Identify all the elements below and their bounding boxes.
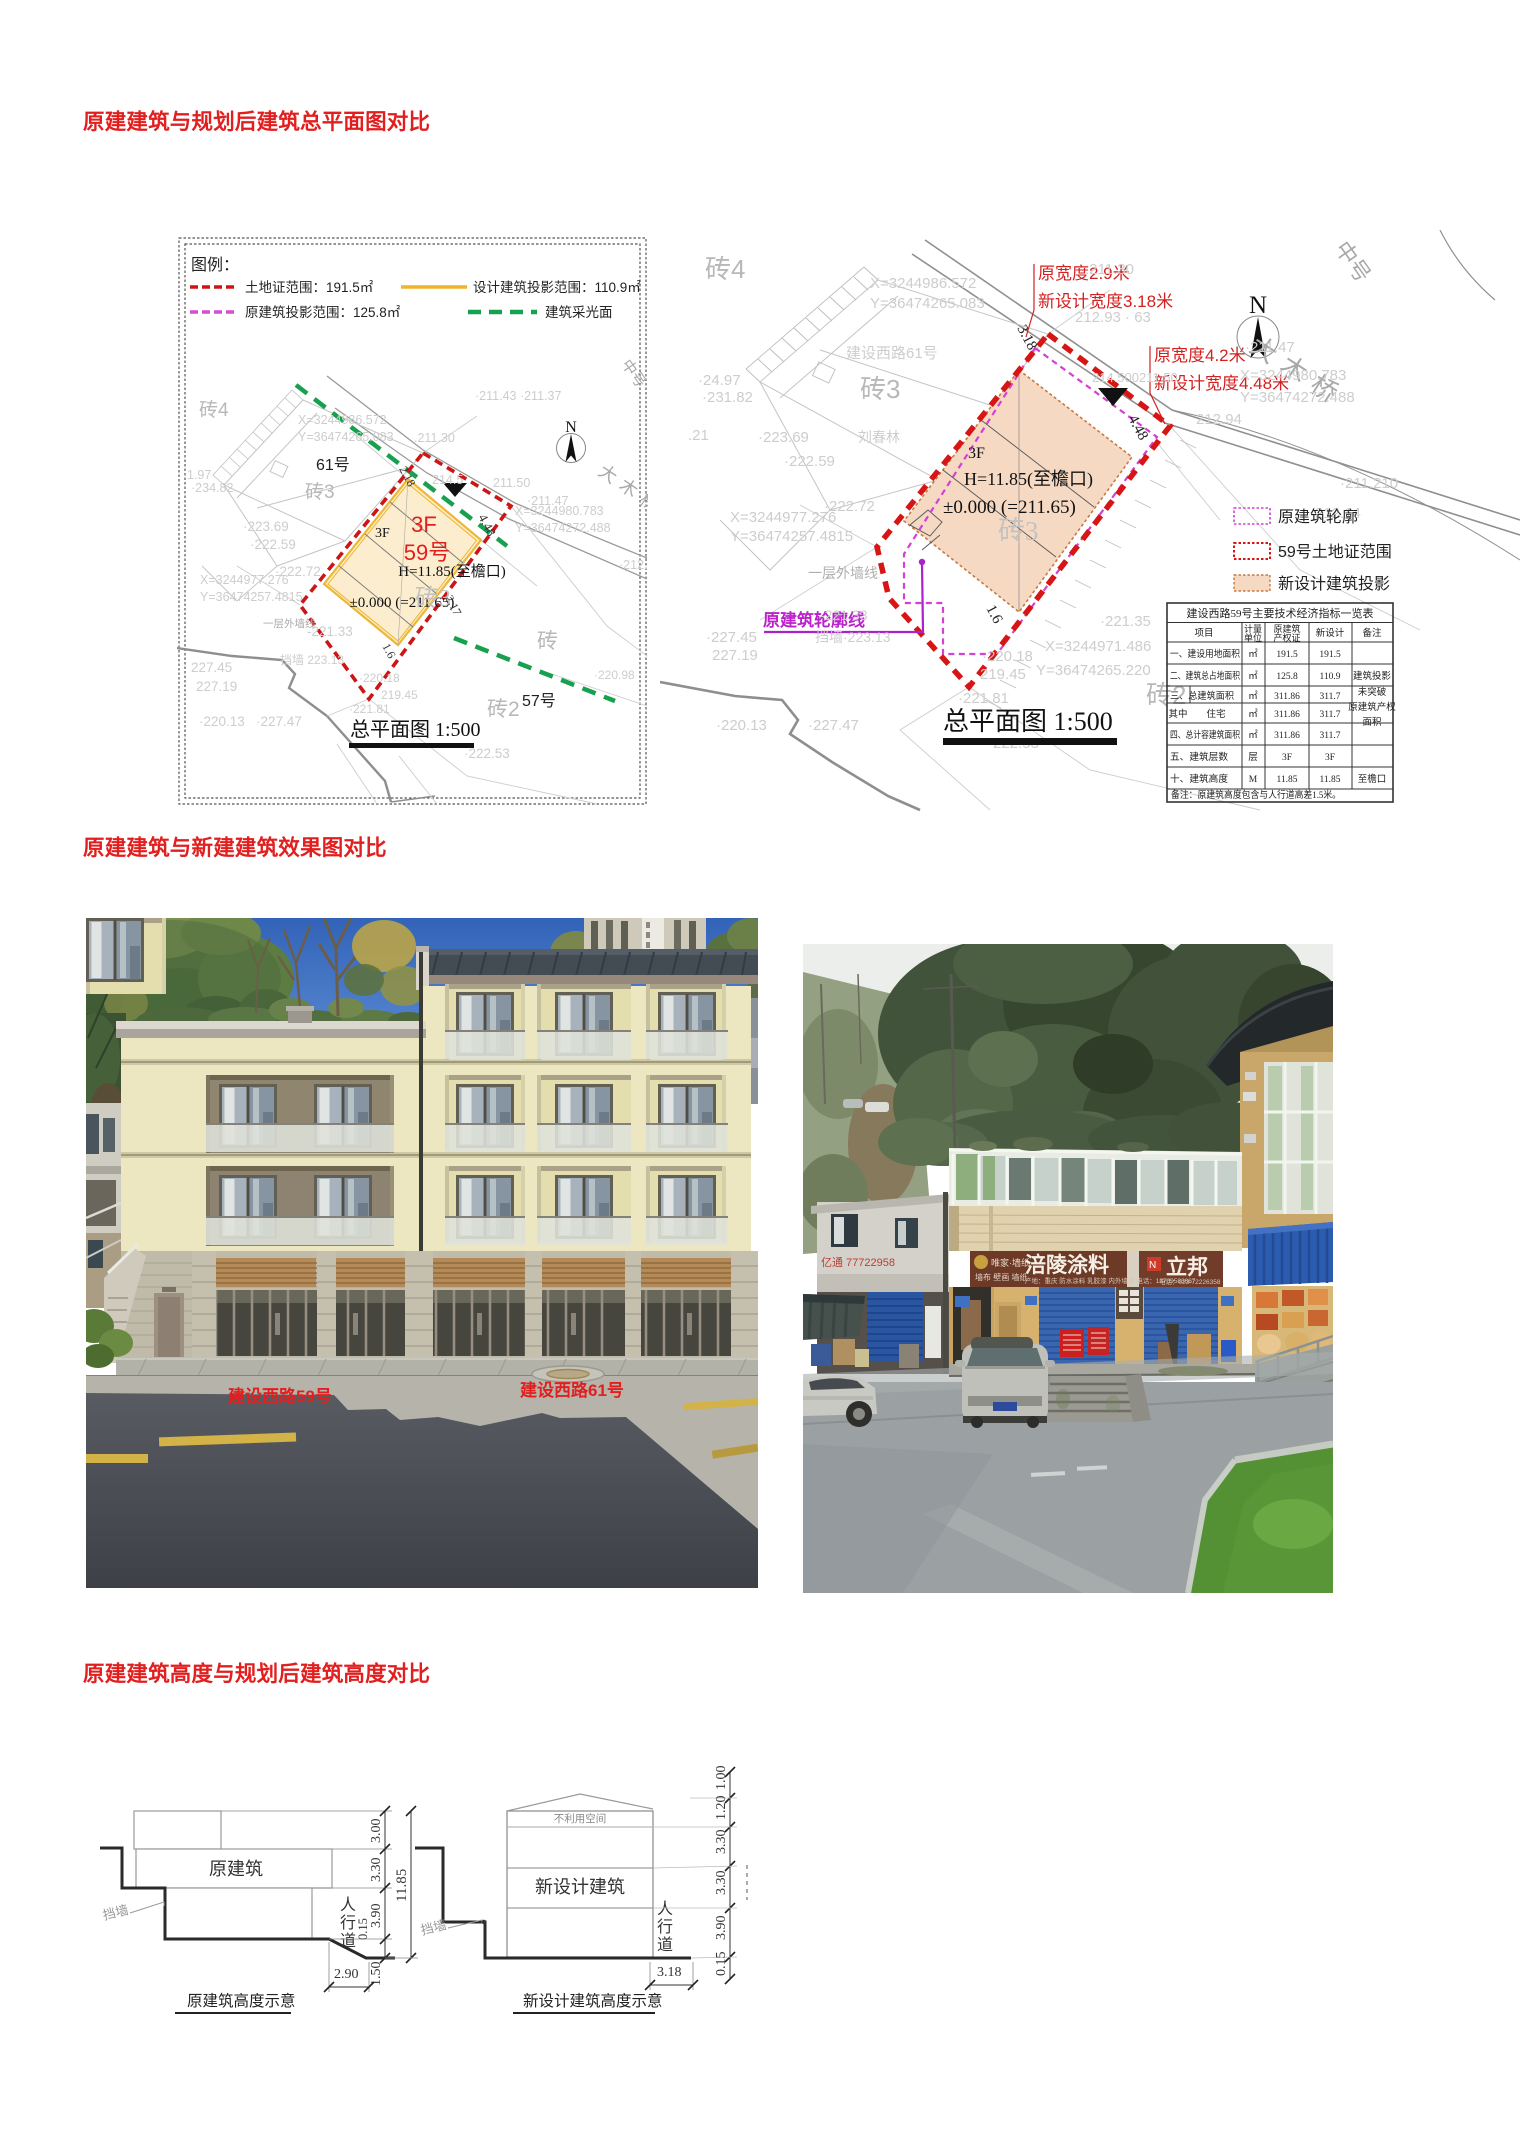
svg-text:新设计: 新设计 [1316,627,1345,639]
svg-text:住宅: 住宅 [1206,708,1225,720]
svg-text:219.45: 219.45 [381,688,418,702]
svg-text:不利用空间: 不利用空间 [554,1812,607,1825]
svg-text:2.17: 2.17 [442,593,464,618]
svg-text:亿通 77722958: 亿通 77722958 [821,1256,895,1269]
svg-text:·220.18: ·220.18 [982,648,1033,665]
svg-text:1.00: 1.00 [714,1766,729,1791]
svg-text:311.7: 311.7 [1319,692,1340,702]
svg-text:·231.82: ·231.82 [702,389,753,406]
svg-text:刘春林: 刘春林 [858,429,900,445]
svg-text:·223.69: ·223.69 [243,519,289,534]
svg-text:图例：: 图例： [191,256,239,274]
svg-text:道: 道 [340,1932,356,1950]
svg-text:125.8: 125.8 [1276,672,1298,682]
svg-text:中号: 中号 [1330,237,1376,287]
svg-text:三、总建筑面积: 三、总建筑面积 [1170,690,1234,702]
svg-text:X=3244986.572: X=3244986.572 [870,275,976,292]
svg-text:·227.47: ·227.47 [256,714,302,729]
svg-text:0.15: 0.15 [356,1918,370,1940]
svg-text:Y=36474257.4815: Y=36474257.4815 [730,528,853,545]
svg-text:总平面图 1:500: 总平面图 1:500 [943,707,1113,736]
svg-text:·234.82: ·234.82 [191,481,233,495]
svg-text:·220.98: ·220.98 [594,668,635,682]
svg-text:新设计建筑: 新设计建筑 [535,1877,625,1897]
svg-text:191.5: 191.5 [1276,650,1298,660]
svg-text:H=11.85(至檐口): H=11.85(至檐口) [964,469,1093,490]
svg-text:59号土地证范围: 59号土地证范围 [1278,543,1392,561]
svg-text:原建筑高度示意: 原建筑高度示意 [187,1991,296,2010]
svg-text:建设西路61号: 建设西路61号 [520,1380,624,1400]
svg-text:227.19: 227.19 [712,647,758,664]
svg-text:3.30: 3.30 [369,1858,384,1883]
svg-text:·227.47: ·227.47 [808,717,859,734]
svg-text:214.500211.50: 214.500211.50 [1092,370,1178,385]
svg-text:新设计建筑高度示意: 新设计建筑高度示意 [523,1991,663,2010]
svg-text:110.9: 110.9 [1319,672,1340,682]
svg-text:·220.13: ·220.13 [199,714,245,729]
svg-text:墙布 壁画 墙纸: 墙布 壁画 墙纸 [975,1272,1027,1282]
svg-text:Y=36474272.488: Y=36474272.488 [515,521,611,535]
svg-text:行: 行 [340,1914,356,1932]
svg-text:4.48: 4.48 [475,511,499,538]
svg-text:219.45: 219.45 [980,666,1026,683]
svg-text:道: 道 [657,1936,673,1954]
svg-text:·211.47: ·211.47 [1245,339,1295,356]
svg-text:311.7: 311.7 [1319,710,1340,720]
svg-text:㎡: ㎡ [1248,709,1258,720]
svg-text:·24.97: ·24.97 [698,372,741,389]
svg-text:3F: 3F [411,512,437,537]
svg-text:227.45: 227.45 [191,660,232,675]
svg-text:311.86: 311.86 [1274,692,1300,702]
svg-text:·221.81: ·221.81 [349,702,390,716]
svg-text:3.18: 3.18 [657,1965,682,1980]
svg-text:N: N [1249,292,1267,319]
svg-text:设计建筑投影范围：110.9㎡: 设计建筑投影范围：110.9㎡ [473,280,641,295]
svg-text:214.5: 214.5 [432,473,463,487]
svg-text:3.90: 3.90 [369,1904,384,1929]
svg-text:11.85: 11.85 [394,1869,410,1902]
svg-text:建筑采光面: 建筑采光面 [545,305,613,320]
svg-text:电话：023-72226358: 电话：023-72226358 [1159,1277,1221,1286]
svg-text:Y=36474257.4815: Y=36474257.4815 [200,590,303,604]
svg-text:其中: 其中 [1168,708,1187,720]
svg-text:建设西路59号主要技术经济指标一览表: 建设西路59号主要技术经济指标一览表 [1187,606,1374,620]
svg-text:建设西路59号: 建设西路59号 [228,1386,332,1406]
svg-text:·223.69: ·223.69 [758,429,809,446]
svg-text:-221.33: -221.33 [307,624,353,639]
svg-text:-221.33: -221.33 [820,607,868,623]
svg-text:一、建设用地面积: 一、建设用地面积 [1170,648,1240,660]
svg-text:191.5: 191.5 [1319,650,1341,660]
svg-text:3.30: 3.30 [714,1830,729,1855]
svg-text:Y=36474272.488: Y=36474272.488 [1240,389,1355,406]
svg-text:·227.45: ·227.45 [706,629,757,646]
svg-text:㎡: ㎡ [1248,691,1258,702]
svg-text:㎡: ㎡ [1248,730,1258,741]
svg-text:61号: 61号 [316,456,350,474]
svg-text:新设计建筑投影: 新设计建筑投影 [1278,575,1390,593]
svg-text:Y=36474265.083: Y=36474265.083 [870,295,985,312]
svg-text:·222.53: ·222.53 [464,746,510,761]
svg-text:211.50: 211.50 [493,476,530,490]
svg-text:原宽度4.2米: 原宽度4.2米 [1154,346,1246,365]
svg-text:砖4: 砖4 [199,399,229,421]
svg-text:11.85: 11.85 [1276,775,1297,785]
svg-text:59号: 59号 [404,540,450,565]
svg-text:X=3244977.276: X=3244977.276 [200,573,289,587]
svg-text:㎡: ㎡ [1248,671,1258,682]
svg-text:面积: 面积 [1362,716,1382,728]
svg-text:一层外墙线: 一层外墙线 [808,565,878,581]
svg-text:四、总计容建筑面积: 四、总计容建筑面积 [1170,729,1240,741]
svg-text:立邦: 立邦 [1166,1255,1208,1279]
svg-text:未突破: 未突破 [1358,686,1387,698]
svg-text:M: M [1249,775,1258,785]
svg-text:项目: 项目 [1194,628,1213,639]
svg-text:3.90: 3.90 [714,1916,729,1941]
svg-text:X=3244977.276: X=3244977.276 [730,509,836,526]
svg-text:3.30: 3.30 [714,1871,729,1896]
svg-text:227.19: 227.19 [196,679,237,694]
svg-text:·211.210: ·211.210 [1340,475,1398,492]
svg-text:·220.18: ·220.18 [359,671,400,685]
svg-text:11.85: 11.85 [1319,775,1340,785]
svg-text:N: N [565,419,577,436]
svg-text:3F: 3F [375,526,390,541]
svg-text:3F: 3F [1282,753,1292,763]
svg-text:原建筑投影范围：125.8㎡: 原建筑投影范围：125.8㎡ [245,305,401,320]
svg-text:行: 行 [657,1918,673,1936]
svg-text:212.93 · 63: 212.93 · 63 [1075,309,1151,326]
svg-text:·222.59: ·222.59 [784,453,835,470]
svg-text:挡墙: 挡墙 [419,1917,448,1938]
svg-text:±0.000 (=211.65): ±0.000 (=211.65) [943,497,1076,518]
svg-text:㎡: ㎡ [1248,649,1258,660]
svg-text:Y=36474265.220: Y=36474265.220 [1036,662,1151,679]
svg-text:挡墙·223.13: 挡墙·223.13 [815,629,891,645]
svg-text:原建筑产权: 原建筑产权 [1348,701,1396,713]
svg-text:挡墙: 挡墙 [101,1902,130,1923]
svg-text:.211.30: .211.30 [414,431,455,445]
svg-text:Y=36474265.083: Y=36474265.083 [298,430,394,444]
svg-text:.21: .21 [688,427,709,444]
svg-text:十、建筑高度: 十、建筑高度 [1170,773,1228,785]
svg-text:3F: 3F [1325,753,1335,763]
svg-text:X=3244980.783: X=3244980.783 [1240,367,1346,384]
svg-text:·212.1: ·212.1 [619,558,648,572]
svg-text:·220.13: ·220.13 [716,717,767,734]
svg-text:建筑投影: 建筑投影 [1353,670,1392,682]
svg-text:3F: 3F [968,445,985,462]
svg-text:1.6: 1.6 [982,602,1005,627]
svg-text:311.86: 311.86 [1274,731,1300,741]
svg-text:0.15: 0.15 [714,1952,729,1977]
svg-text:产权证: 产权证 [1273,632,1300,643]
svg-text:层: 层 [1248,752,1258,763]
svg-text:二、建筑总占地面积: 二、建筑总占地面积 [1170,670,1240,682]
svg-text:挡墙 223.13: 挡墙 223.13 [280,653,344,667]
svg-text:人: 人 [657,1900,673,1918]
svg-text:建设西路61号: 建设西路61号 [846,345,938,362]
svg-text:中号: 中号 [618,357,648,391]
svg-text:X=3244971.486: X=3244971.486 [1045,638,1151,655]
svg-text:311.7: 311.7 [1319,731,1340,741]
svg-text:砖3: 砖3 [860,374,900,404]
svg-text:1.50: 1.50 [369,1962,384,1987]
svg-text:五、建筑层数: 五、建筑层数 [1170,751,1228,763]
svg-text:X=3244980.783: X=3244980.783 [515,504,604,518]
svg-text:备注: 备注 [1362,627,1382,639]
svg-text:·211.43 ·211.37: ·211.43 ·211.37 [475,389,561,403]
svg-text:.211.30: .211.30 [1085,261,1134,278]
svg-text:单位: 单位 [1244,632,1262,643]
svg-text:土地证范围：191.5㎡: 土地证范围：191.5㎡ [245,280,374,295]
svg-text:涪陵涂料: 涪陵涂料 [1025,1253,1109,1277]
svg-text:·222.59: ·222.59 [250,537,296,552]
svg-text:3.00: 3.00 [369,1819,384,1844]
svg-text:311.86: 311.86 [1274,710,1300,720]
svg-text:砖: 砖 [537,630,558,653]
svg-text:人: 人 [340,1896,356,1914]
svg-text:4.48: 4.48 [1124,412,1150,443]
svg-text:砖4: 砖4 [705,254,745,284]
svg-text:X=3244986.572: X=3244986.572 [298,413,387,427]
svg-text:砖3: 砖3 [305,481,335,503]
svg-text:57号: 57号 [522,692,556,710]
svg-text:N: N [1149,1260,1156,1271]
svg-text:1.97: 1.97 [187,468,211,482]
svg-text:·221.35: ·221.35 [1100,613,1151,630]
svg-text:砖3: 砖3 [998,516,1039,546]
svg-text:·221.81: ·221.81 [958,690,1009,707]
svg-text:至檐口: 至檐口 [1358,773,1387,785]
svg-text:212.94: 212.94 [1196,411,1242,428]
svg-text:原建筑轮廓: 原建筑轮廓 [1278,508,1358,526]
svg-text:2.90: 2.90 [334,1967,359,1982]
svg-text:H=11.85(至檐口): H=11.85(至檐口) [398,563,505,580]
svg-text:总平面图 1:500: 总平面图 1:500 [350,718,481,741]
svg-text:砖2: 砖2 [487,698,520,721]
svg-text:原建筑: 原建筑 [209,1859,263,1879]
svg-text:1.20: 1.20 [714,1796,729,1821]
svg-text:备注：原建筑高度包含与人行道高差1.5米。: 备注：原建筑高度包含与人行道高差1.5米。 [1171,789,1341,801]
